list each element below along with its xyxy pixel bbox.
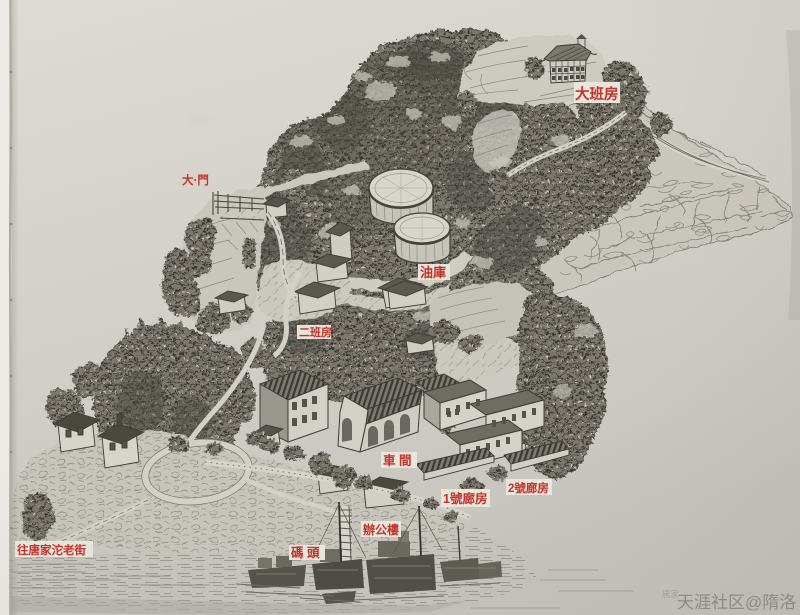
svg-text:天涯社区@隋洛: 天涯社区@隋洛: [677, 593, 796, 612]
svg-text:車 間: 車 間: [383, 453, 411, 468]
svg-text:1號廊房: 1號廊房: [443, 491, 487, 506]
svg-text:2號廊房: 2號廊房: [508, 481, 549, 495]
svg-text:二班房: 二班房: [299, 325, 332, 339]
svg-text:碼 頭: 碼 頭: [290, 545, 320, 560]
svg-text:大·門: 大·門: [182, 173, 209, 187]
svg-text:油庫: 油庫: [420, 265, 446, 280]
svg-text:往唐家沱老街: 往唐家沱老街: [17, 543, 86, 557]
svg-text:大班房: 大班房: [575, 85, 619, 103]
svg-text:辦公樓: 辦公樓: [363, 522, 399, 537]
